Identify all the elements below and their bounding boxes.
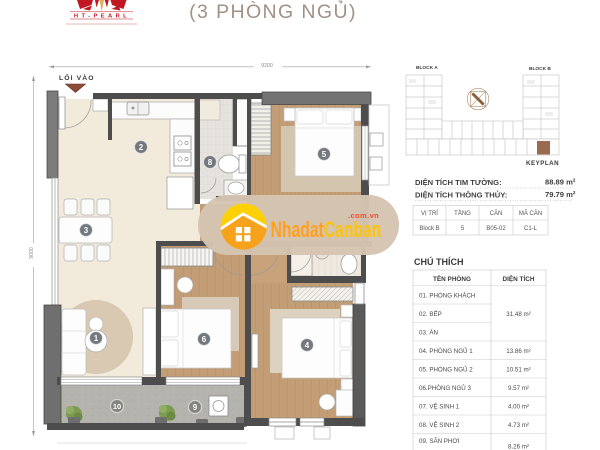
svg-text:5: 5: [322, 150, 327, 159]
svg-text:MÃ CĂN: MÃ CĂN: [519, 210, 542, 217]
svg-text:DIỆN TÍCH TIM TƯỜNG:: DIỆN TÍCH TIM TƯỜNG:: [415, 178, 502, 187]
svg-text:08. VỆ SINH 2: 08. VỆ SINH 2: [419, 421, 460, 429]
svg-text:4: 4: [305, 341, 310, 350]
svg-text:13.86 m²: 13.86 m²: [506, 348, 530, 355]
svg-text:06.PHÒNG NGỦ 3: 06.PHÒNG NGỦ 3: [419, 385, 471, 392]
svg-text:B05-02: B05-02: [486, 226, 506, 232]
svg-text:9: 9: [193, 403, 198, 412]
svg-text:05. PHÒNG NGỦ 2: 05. PHÒNG NGỦ 2: [419, 367, 473, 374]
svg-text:HT-PEARL: HT-PEARL: [74, 14, 130, 20]
svg-text:BLOCK A: BLOCK A: [416, 65, 438, 71]
svg-text:8: 8: [208, 158, 213, 167]
svg-text:CĂN: CĂN: [490, 210, 503, 217]
svg-text:.com.vn: .com.vn: [348, 211, 379, 220]
svg-text:9000: 9000: [29, 247, 35, 259]
svg-text:(3 PHÒNG NGỦ): (3 PHÒNG NGỦ): [189, 0, 357, 23]
svg-text:88.89 m²: 88.89 m²: [545, 178, 576, 187]
svg-text:10: 10: [113, 402, 121, 411]
svg-text:4.00 m²: 4.00 m²: [508, 404, 529, 411]
svg-text:TÊN PHÒNG: TÊN PHÒNG: [433, 274, 471, 283]
svg-text:2: 2: [139, 143, 144, 152]
svg-text:3: 3: [84, 226, 89, 235]
svg-text:79.79 m²: 79.79 m²: [545, 190, 576, 199]
svg-text:01. PHÒNG KHÁCH: 01. PHÒNG KHÁCH: [419, 293, 475, 300]
svg-text:10.51 m²: 10.51 m²: [506, 367, 530, 374]
svg-text:02. BẾP: 02. BẾP: [419, 311, 442, 318]
svg-text:CHÚ THÍCH: CHÚ THÍCH: [414, 256, 464, 267]
svg-text:DIỆN TÍCH: DIỆN TÍCH: [503, 274, 535, 283]
svg-text:C1-L: C1-L: [524, 226, 538, 232]
svg-text:8.26 m²: 8.26 m²: [508, 444, 529, 450]
svg-text:TẦNG: TẦNG: [454, 210, 471, 217]
svg-text:04. PHÒNG NGỦ 1: 04. PHÒNG NGỦ 1: [419, 348, 473, 355]
svg-text:NhadatCanban: NhadatCanban: [271, 219, 382, 243]
svg-text:31.48 m²: 31.48 m²: [506, 311, 530, 318]
svg-text:03. ĂN: 03. ĂN: [419, 330, 438, 337]
svg-text:09. SÂN PHƠI: 09. SÂN PHƠI: [419, 438, 460, 445]
svg-text:1: 1: [94, 334, 99, 343]
svg-text:9.57 m²: 9.57 m²: [508, 385, 529, 392]
svg-text:BLOCK B: BLOCK B: [529, 66, 551, 72]
svg-text:KEYPLAN: KEYPLAN: [526, 160, 559, 167]
svg-text:VỊ TRÍ: VỊ TRÍ: [421, 210, 438, 217]
svg-text:DIỆN TÍCH THÔNG THỦY:: DIỆN TÍCH THÔNG THỦY:: [415, 191, 507, 200]
svg-text:07. VỆ SINH 1: 07. VỆ SINH 1: [419, 403, 460, 411]
svg-text:9200: 9200: [261, 63, 273, 69]
svg-text:4.73 m²: 4.73 m²: [508, 422, 529, 429]
svg-text:6: 6: [202, 335, 207, 344]
svg-text:Block B: Block B: [419, 226, 439, 232]
